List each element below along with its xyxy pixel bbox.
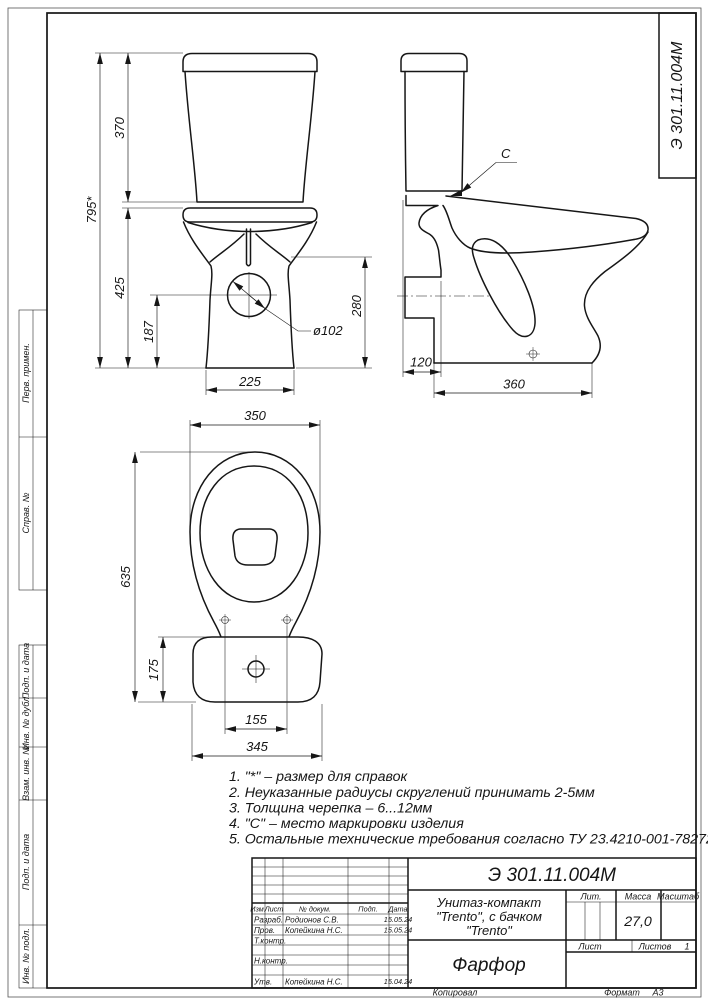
plan-view: 350 635 175 155 345 [118, 408, 322, 761]
note-5: 5. Остальные технические требования согл… [229, 832, 708, 848]
mark-c-leader [461, 163, 496, 193]
tb-sheets-count: 1 [684, 942, 689, 952]
note-2: 2. Неуказанные радиусы скруглений приним… [228, 785, 595, 801]
tb-product-title-1: Унитаз-компакт [436, 895, 541, 910]
tb-sheet-label: Лист [577, 942, 602, 952]
corner-doc-number: Э 301.11.004М [669, 41, 686, 149]
drawing-sheet: Э 301.11.004М Перв. примен. Справ. № Под… [0, 0, 708, 1000]
dim-bolt-spacing: 155 [245, 712, 267, 727]
tb-header-sign: Подп. [358, 905, 377, 914]
dim-rear-offset: 120 [410, 355, 432, 370]
tb-role-checker: Пров. [254, 926, 275, 935]
dim-overall-length: 635 [118, 565, 133, 587]
note-1: 1. "*" – размер для справок [229, 769, 409, 785]
tb-scale-label: Масштаб [657, 892, 700, 902]
tb-date-developer: 15.05.24 [384, 915, 412, 924]
side-tank [405, 72, 464, 192]
note-4: 4. "С" – место маркировки изделия [229, 816, 464, 832]
tb-date-checker: 15.05.24 [384, 926, 412, 935]
tb-header-izm: Изм. [250, 905, 266, 914]
side-trap-profile [405, 196, 441, 364]
tb-role-developer: Разраб. [254, 916, 283, 925]
tb-mass-label: Масса [625, 892, 652, 902]
tb-mass-value: 27,0 [623, 914, 652, 930]
dim-tank-width: 345 [246, 739, 268, 754]
tb-date-approver: 15.04.24 [384, 977, 412, 986]
mark-c-label: C [501, 146, 511, 161]
front-center-slot [247, 229, 251, 266]
tb-name-approver: Копейкина Н.С. [285, 978, 343, 987]
front-tank [185, 72, 315, 203]
side-back-curve [584, 232, 648, 363]
drawing-frame [8, 8, 701, 997]
format-value: А3 [651, 988, 663, 998]
side-rim-underside [443, 206, 634, 253]
margin-label-sign-date-1: Подп. и дата [21, 643, 31, 699]
dim-rim-width: 350 [244, 408, 266, 423]
title-block: Изм. Лист № докум. Подп. Дата Разраб. Ро… [250, 858, 700, 998]
side-tank-lid [401, 54, 467, 72]
tb-header-list: Лист [264, 905, 284, 914]
tb-header-doc: № докум. [299, 905, 331, 914]
tb-product-title-2: "Trento", с бачком [436, 909, 542, 924]
dim-tank-overhang: 175 [146, 658, 161, 680]
margin-label-repl-inv: Взам. инв. № [21, 745, 31, 801]
dim-outlet-height: 187 [141, 320, 156, 342]
dim-base-length: 360 [503, 377, 525, 392]
margin-stamps: Перв. примен. Справ. № Подп. и дата Инв.… [19, 310, 47, 988]
tb-name-developer: Родионов С.В. [285, 916, 339, 925]
dim-tank-height: 370 [112, 116, 127, 138]
tb-role-approver: Утв. [253, 978, 272, 987]
margin-label-inv-dupl: Инв. № дубл. [21, 694, 31, 749]
margin-label-sign-date-2: Подп. и дата [21, 834, 31, 890]
note-3: 3. Толщина черепка – 6...12мм [229, 801, 433, 817]
front-seat-band [183, 208, 317, 222]
margin-label-ref-no: Справ. № [21, 492, 31, 533]
front-view: ø102 795* 370 425 187 280 225 [84, 53, 372, 395]
tb-role-tcontrol: Т.контр. [254, 937, 286, 946]
tb-role-ncontrol: Н.контр. [254, 957, 288, 966]
dim-overall-height: 795* [84, 196, 99, 224]
front-pedestal-right [288, 222, 316, 368]
copied-by-label: Копировал [433, 988, 478, 998]
tb-name-checker: Копейкина Н.С. [285, 926, 343, 935]
front-tank-lid [183, 54, 317, 72]
dim-base-width: 225 [238, 374, 261, 389]
plan-seat-outline [190, 452, 320, 640]
plan-tank-outline [193, 637, 322, 702]
dim-shelf-height: 280 [349, 294, 364, 317]
engineering-drawing: Э 301.11.004М Перв. примен. Справ. № Под… [0, 0, 708, 1000]
tb-product-title-3: "Trento" [466, 923, 513, 938]
dim-bowl-height: 425 [112, 276, 127, 298]
tb-sheets-label: Листов [638, 942, 672, 952]
margin-label-inv-orig: Инв. № подл. [21, 928, 31, 984]
format-label: Формат [604, 988, 640, 998]
corner-stamp: Э 301.11.004М [659, 13, 696, 178]
technical-notes: 1. "*" – размер для справок 2. Неуказанн… [228, 769, 708, 848]
dim-outlet-diameter: ø102 [313, 323, 343, 338]
side-seat-top [446, 196, 648, 240]
tb-header-date: Дата [387, 905, 407, 914]
side-view: C 120 360 [397, 54, 648, 399]
tb-lit-label: Лит. [579, 892, 601, 902]
margin-label-first-use: Перв. примен. [21, 343, 31, 403]
tb-material: Фарфор [452, 955, 525, 976]
tb-doc-number: Э 301.11.004М [488, 865, 616, 886]
outer-border [8, 8, 701, 997]
